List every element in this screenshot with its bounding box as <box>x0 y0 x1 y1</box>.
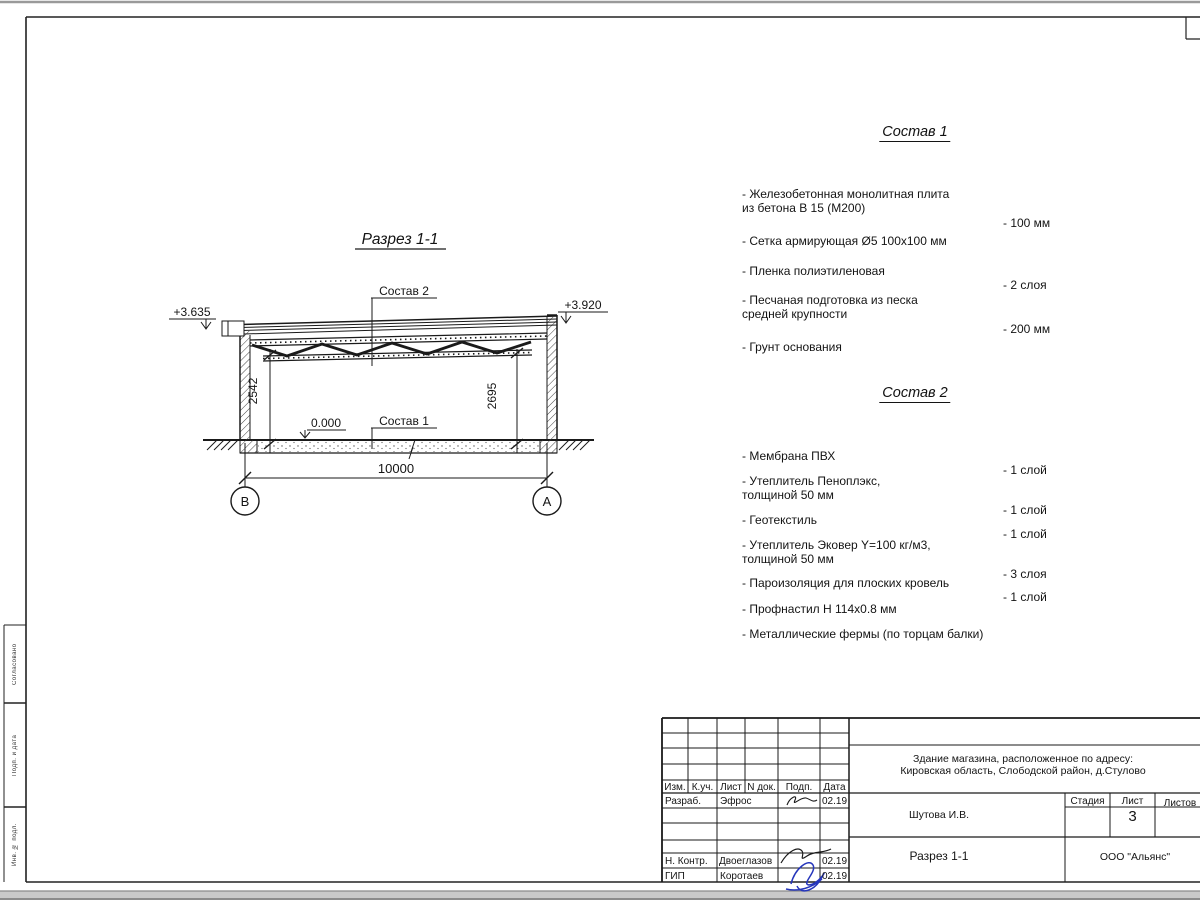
sostav1-heading: Состав 1 <box>879 124 950 142</box>
tb-sheets-label: Листов <box>1155 798 1200 809</box>
axis-letter-right: А <box>543 494 552 509</box>
list-item: - Металлические фермы (по торцам балки) <box>742 612 1077 656</box>
section-title: Разрез 1-1 <box>362 231 439 248</box>
tb-date-nkontr: 02.19 <box>820 856 849 867</box>
leader-label-sostav1: Состав 1 <box>379 414 429 428</box>
signature-gip-blue <box>786 863 824 891</box>
dim-right: 2695 <box>485 382 499 409</box>
tb-sheet-label: Лист <box>1110 796 1155 807</box>
tb-role-nkontr: Н. Контр. <box>665 856 708 867</box>
list-item: - Грунт основания <box>742 325 1077 369</box>
tb-name-razrab: Эфрос <box>720 796 752 807</box>
elevation-right: +3.920 <box>564 298 601 312</box>
scan-bottom-band <box>0 891 1200 900</box>
drawing-sheet: Разрез 1-1 +3.635 +3.920 Состав 2 Состав… <box>0 0 1200 900</box>
tb-header-list: Лист <box>717 782 745 793</box>
tb-stage-label: Стадия <box>1065 796 1110 807</box>
tb-header-podp: Подп. <box>778 782 820 793</box>
tb-company: ООО "Альянс" <box>1065 852 1200 863</box>
axis-letter-left: В <box>241 494 250 509</box>
tb-header-izm: Изм. <box>662 782 688 793</box>
tb-header-data: Дата <box>820 782 849 793</box>
elevation-left: +3.635 <box>173 305 210 319</box>
side-label-middle: Подп. и дата <box>5 704 25 806</box>
tb-name-nkontr: Двоеглазов <box>719 856 772 867</box>
tb-header-ndok: N док. <box>745 782 778 793</box>
tb-name-gip: Коротаев <box>720 871 763 882</box>
tb-header-kuch: К.уч. <box>688 782 717 793</box>
tb-role-razrab: Разраб. <box>665 796 701 807</box>
tb-doc-title: Разрез 1-1 <box>849 851 1029 862</box>
tb-date-gip: 02.19 <box>820 871 849 882</box>
tb-author: Шутова И.В. <box>849 810 1029 821</box>
side-label-bottom: Инв. № подл. <box>5 808 25 881</box>
tb-project-address: Здание магазина, расположенное по адресу… <box>849 753 1197 777</box>
level-zero: 0.000 <box>311 416 341 430</box>
dim-span: 10000 <box>378 461 414 476</box>
dim-left: 2542 <box>246 377 260 404</box>
side-label-top: Согласовано <box>5 626 25 702</box>
signature-razrab <box>787 797 817 805</box>
leader-label-sostav2: Состав 2 <box>379 284 429 298</box>
sostav2-heading: Состав 2 <box>879 385 950 403</box>
tb-role-gip: ГИП <box>665 871 685 882</box>
tb-date-razrab: 02.19 <box>820 796 849 807</box>
tb-sheet-number: 3 <box>1110 811 1155 822</box>
